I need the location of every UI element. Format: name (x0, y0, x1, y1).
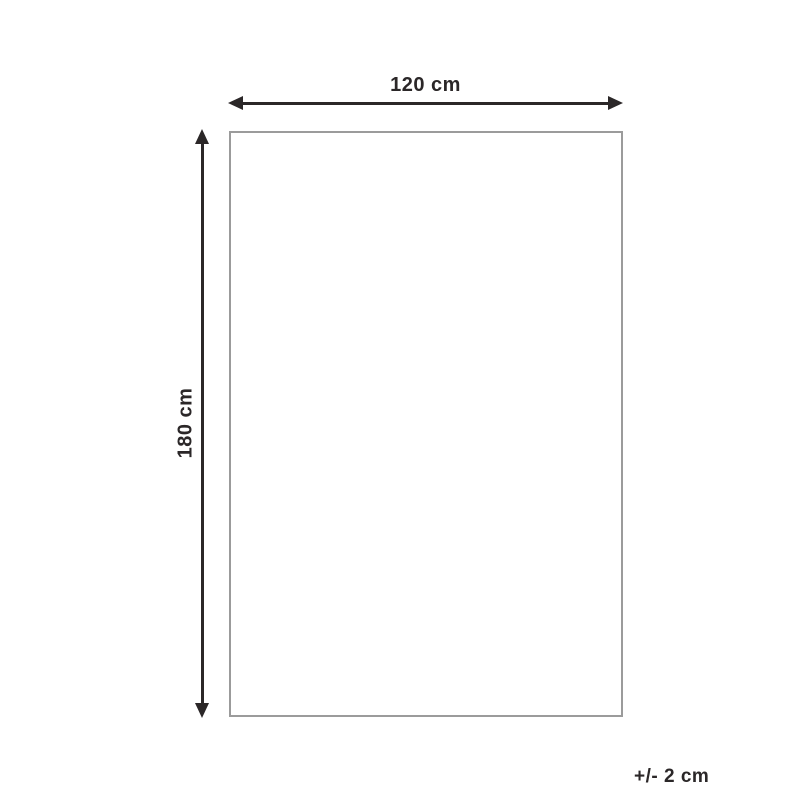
height-dimension-arrow-icon (195, 129, 209, 718)
arrow-shaft (237, 102, 614, 105)
tolerance-label: +/- 2 cm (634, 766, 709, 788)
arrow-shaft (201, 138, 204, 709)
arrowhead-down-icon (195, 703, 209, 718)
product-outline-rectangle (229, 131, 623, 717)
width-dimension-arrow-icon (228, 96, 623, 110)
width-dimension-label: 120 cm (228, 74, 623, 97)
dimension-diagram: 120 cm 180 cm +/- 2 cm (0, 0, 800, 800)
arrowhead-right-icon (608, 96, 623, 110)
